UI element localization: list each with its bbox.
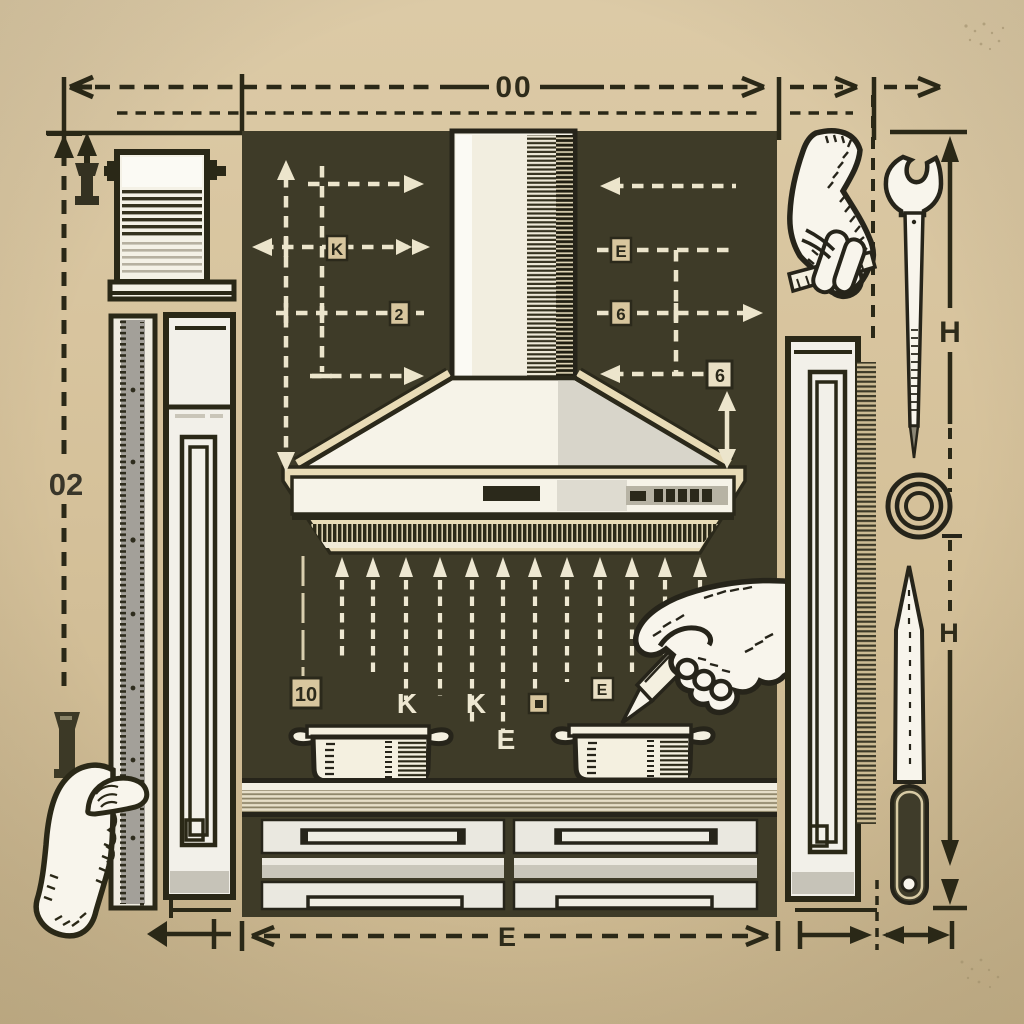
svg-text:K: K (466, 688, 486, 719)
svg-text:10: 10 (295, 684, 317, 706)
svg-text:E: E (497, 724, 516, 755)
svg-text:H: H (939, 618, 959, 648)
svg-text:6: 6 (715, 366, 725, 386)
svg-text:00: 00 (495, 71, 532, 104)
svg-text:6: 6 (616, 305, 625, 324)
svg-text:E: E (597, 682, 608, 699)
svg-text:E: E (615, 242, 626, 261)
svg-text:02: 02 (49, 467, 83, 502)
svg-text:K: K (397, 688, 417, 719)
svg-text:2: 2 (395, 307, 404, 324)
svg-text:E: E (498, 922, 516, 952)
svg-text:K: K (331, 240, 344, 259)
svg-text:H: H (939, 316, 961, 349)
